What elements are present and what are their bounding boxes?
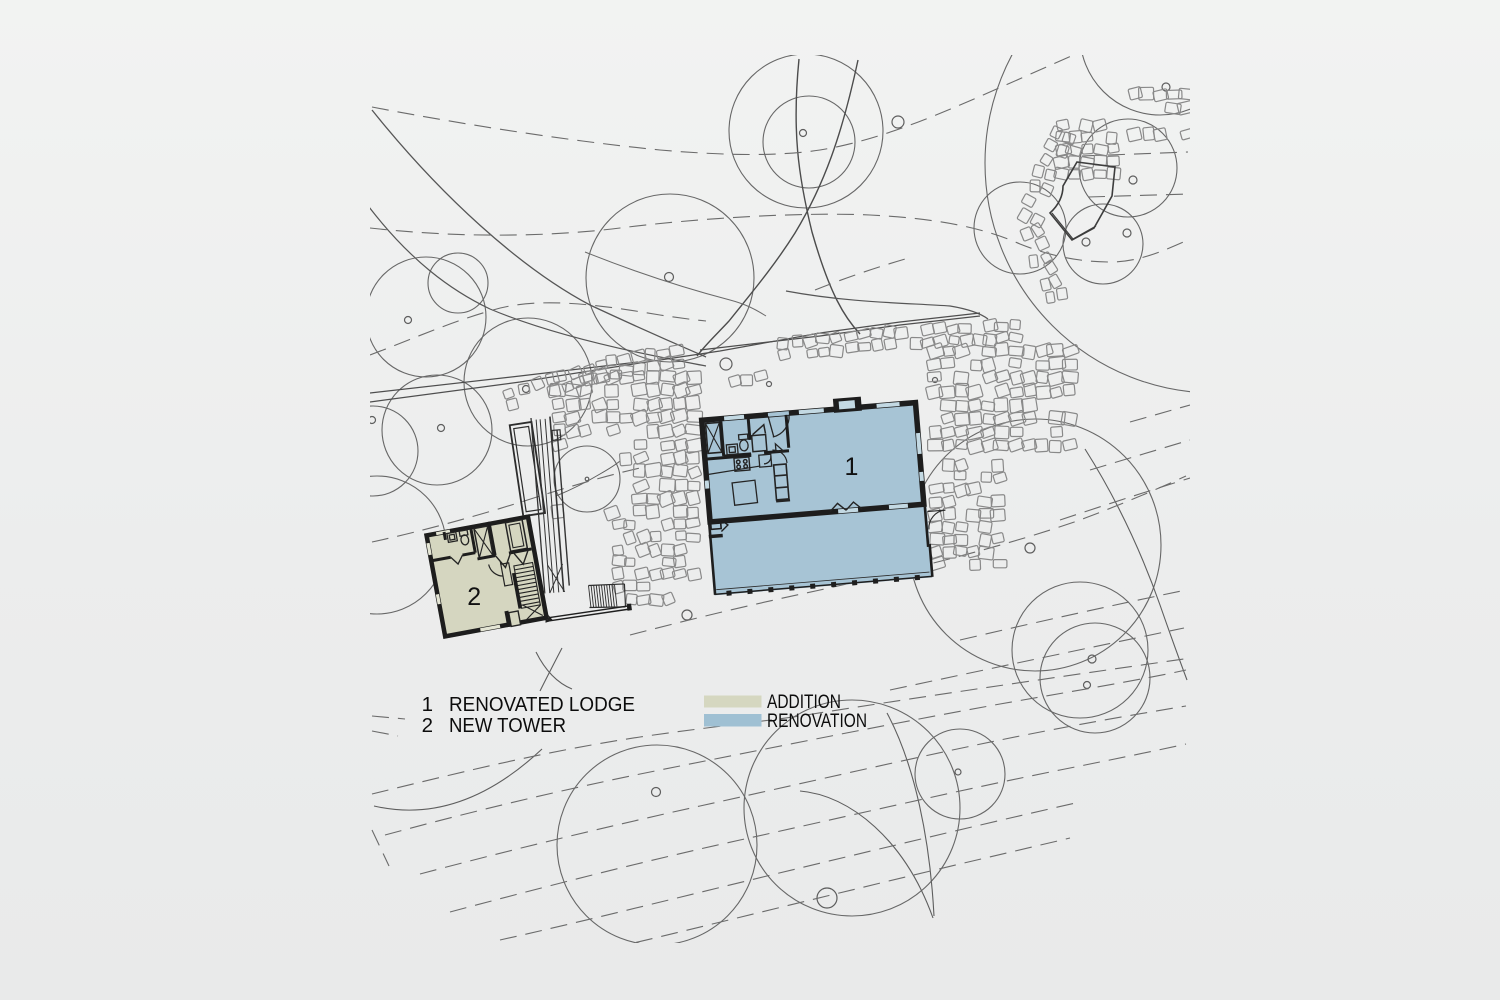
svg-text:RENOVATED LODGE: RENOVATED LODGE	[449, 693, 635, 716]
svg-text:1: 1	[422, 693, 433, 716]
svg-text:1: 1	[844, 453, 858, 481]
svg-text:2: 2	[467, 583, 481, 611]
svg-text:2: 2	[422, 714, 433, 737]
svg-text:NEW TOWER: NEW TOWER	[449, 714, 566, 737]
svg-text:RENOVATION: RENOVATION	[767, 710, 867, 732]
